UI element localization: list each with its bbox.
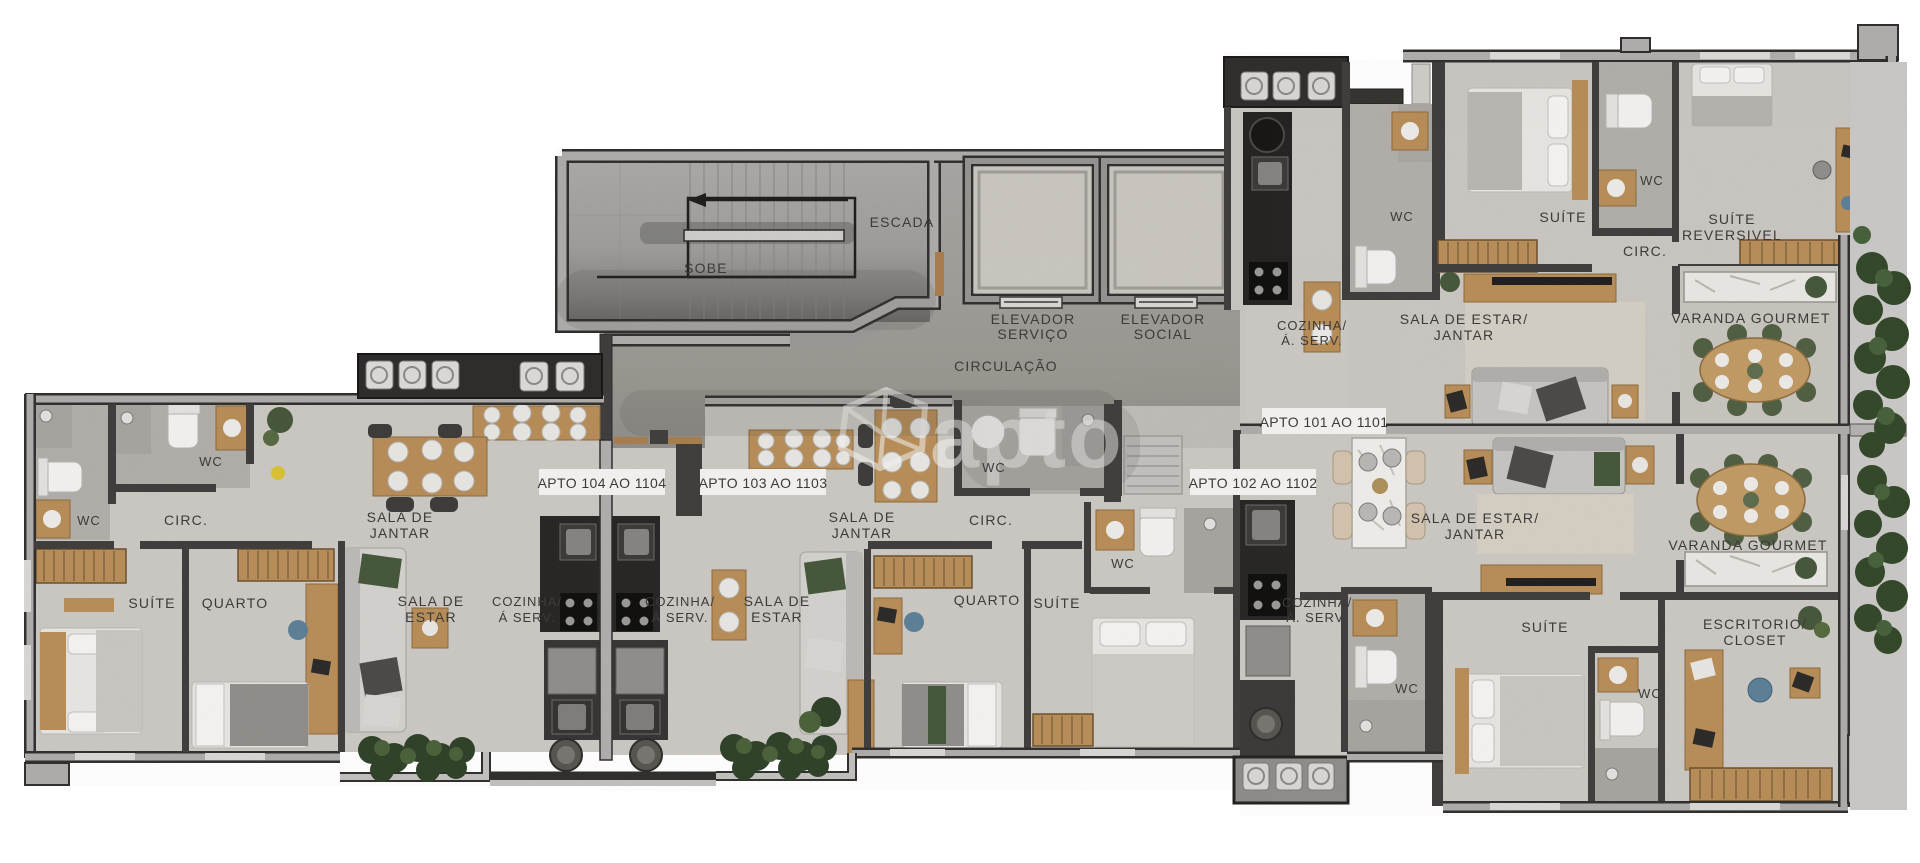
svg-text:SOCIAL: SOCIAL [1134,326,1193,342]
svg-text:CLOSET: CLOSET [1723,632,1786,648]
svg-text:ESTAR: ESTAR [751,609,803,625]
svg-text:APTO 101 AO 1101: APTO 101 AO 1101 [1260,414,1389,430]
svg-text:ELEVADOR: ELEVADOR [1121,311,1206,327]
svg-text:WC: WC [199,454,223,469]
svg-text:SUÍTE: SUÍTE [1539,209,1586,225]
svg-text:Á. SERV.: Á. SERV. [1281,333,1342,348]
svg-text:JANTAR: JANTAR [1434,327,1495,343]
svg-text:SALA DE ESTAR/: SALA DE ESTAR/ [1411,510,1540,526]
svg-text:WC: WC [1640,173,1664,188]
svg-text:APTO 103 AO 1103: APTO 103 AO 1103 [699,475,828,491]
svg-text:JANTAR: JANTAR [832,525,893,541]
svg-text:SUÍTE: SUÍTE [1521,619,1568,635]
svg-text:SALA DE: SALA DE [744,593,811,609]
svg-text:JANTAR: JANTAR [1445,526,1506,542]
svg-text:CIRC.: CIRC. [969,512,1013,528]
svg-text:APTO 104 AO 1104: APTO 104 AO 1104 [538,475,667,491]
svg-text:WC: WC [1390,209,1414,224]
svg-text:SALA DE: SALA DE [367,509,434,525]
svg-text:COZINHA/: COZINHA/ [645,594,715,609]
svg-text:JANTAR: JANTAR [370,525,431,541]
svg-text:WC: WC [982,460,1006,475]
svg-text:QUARTO: QUARTO [954,592,1021,608]
svg-text:VARANDA GOURMET: VARANDA GOURMET [1671,310,1830,326]
svg-text:VARANDA GOURMET: VARANDA GOURMET [1668,537,1827,553]
svg-text:Á SERV.: Á SERV. [652,610,709,625]
svg-text:ELEVADOR: ELEVADOR [991,311,1076,327]
svg-text:COZINHA/: COZINHA/ [1277,318,1347,333]
svg-text:CIRC.: CIRC. [164,512,208,528]
svg-text:Á. SERV.: Á. SERV. [1286,610,1347,625]
svg-text:WC: WC [1395,681,1419,696]
svg-text:ESCRITORIO/: ESCRITORIO/ [1703,616,1807,632]
svg-text:Á SERV.: Á SERV. [499,610,556,625]
svg-text:SERVIÇO: SERVIÇO [997,326,1068,342]
svg-text:SUÍTE: SUÍTE [1033,595,1080,611]
svg-text:SALA DE: SALA DE [398,593,465,609]
svg-text:REVERSIVEL: REVERSIVEL [1682,227,1782,243]
svg-text:COZINHA/: COZINHA/ [492,594,562,609]
svg-text:WC: WC [1111,556,1135,571]
svg-text:APTO 102 AO 1102: APTO 102 AO 1102 [1189,475,1318,491]
svg-text:SALA DE: SALA DE [829,509,896,525]
svg-text:WC: WC [1638,686,1662,701]
svg-text:WC: WC [77,513,101,528]
svg-text:COZINHA/: COZINHA/ [1282,595,1352,610]
svg-text:SUÍTE: SUÍTE [1708,211,1755,227]
svg-text:ESTAR: ESTAR [405,609,457,625]
svg-text:CIRC.: CIRC. [1623,243,1667,259]
svg-text:SUÍTE: SUÍTE [128,595,175,611]
svg-text:CIRCULAÇÃO: CIRCULAÇÃO [954,358,1058,374]
svg-text:SOBE: SOBE [684,260,728,276]
svg-text:SALA DE ESTAR/: SALA DE ESTAR/ [1400,311,1529,327]
svg-text:QUARTO: QUARTO [202,595,269,611]
svg-text:ESCADA: ESCADA [870,214,935,230]
